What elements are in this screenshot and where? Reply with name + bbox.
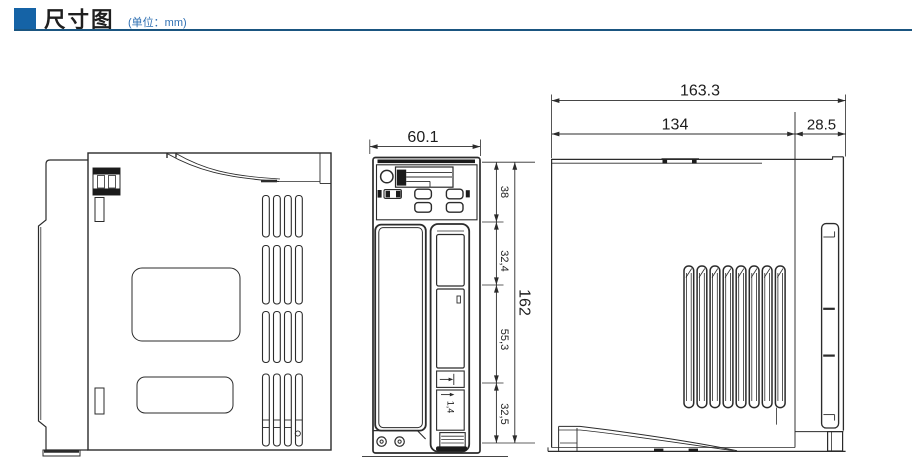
vent-grid <box>263 196 303 447</box>
dimension-drawing: 1,4 <box>0 0 920 471</box>
button <box>415 189 432 199</box>
din-clip-detail <box>93 168 120 195</box>
dim-front-section-width: 28.5 <box>807 117 836 134</box>
button <box>446 189 463 199</box>
side-recess-large <box>132 268 240 341</box>
terminal-door <box>375 225 426 431</box>
heatsink-fins <box>684 266 785 425</box>
bottom-foot <box>373 431 426 447</box>
dim-front-width: 60.1 <box>370 129 481 156</box>
knob <box>381 170 393 182</box>
button <box>415 203 432 213</box>
control-panel <box>377 165 478 220</box>
dim-overall-width: 163.3 <box>680 82 720 99</box>
dim-seg-32-5: 32,5 <box>498 403 510 424</box>
dim-height-chain: 38 32,4 55,3 32,5 162 <box>482 162 535 443</box>
right-side-view: 163.3 134 28.5 <box>548 82 846 451</box>
latch-slot-top <box>95 198 104 222</box>
dim-body-width: 134 <box>662 117 689 134</box>
button-row-1 <box>378 189 470 199</box>
button-row-2 <box>415 203 463 213</box>
bottom-foot <box>828 432 843 451</box>
dim-seg-55-3: 55,3 <box>498 329 510 350</box>
side-recess-small <box>137 377 233 413</box>
dim-slot-thickness: 1,4 <box>446 401 456 414</box>
dim-seg-38: 38 <box>498 186 510 198</box>
latch-slot-bottom <box>95 388 104 414</box>
left-side-view <box>39 153 332 456</box>
screw <box>395 437 404 446</box>
screw <box>377 437 386 446</box>
mounting-flange <box>39 160 89 450</box>
front-view: 1,4 <box>362 129 535 456</box>
dim-overall-height: 162 <box>515 289 532 316</box>
dim-side-widths: 163.3 134 28.5 <box>552 82 846 447</box>
svg-text:60.1: 60.1 <box>407 129 438 146</box>
dimension-diagram-page: 尺寸图 (单位：mm) <box>0 0 920 471</box>
dim-seg-32-4: 32,4 <box>498 250 510 271</box>
rail-latch <box>822 224 839 428</box>
display <box>396 167 454 187</box>
bezel-curve <box>167 153 331 184</box>
button <box>446 203 463 213</box>
connector-slot: 1,4 <box>431 224 470 452</box>
